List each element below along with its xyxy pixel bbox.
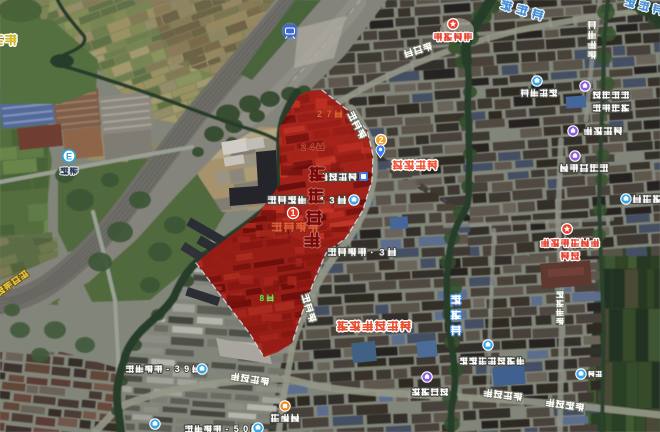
svg-text:5: 5 [234, 424, 239, 432]
svg-text:2: 2 [301, 143, 306, 152]
svg-text:2: 2 [317, 109, 322, 119]
svg-text:4: 4 [310, 143, 315, 152]
svg-text:·: · [370, 247, 373, 258]
svg-text:-: - [225, 424, 228, 432]
svg-text:3: 3 [175, 364, 180, 374]
svg-text:0: 0 [243, 424, 248, 432]
svg-text:7: 7 [326, 109, 331, 119]
svg-text:3: 3 [329, 195, 334, 206]
svg-text:1: 1 [290, 208, 295, 218]
svg-text:9: 9 [184, 364, 189, 374]
svg-text:E: E [66, 152, 72, 162]
svg-text:-: - [166, 364, 169, 374]
svg-text:3: 3 [379, 247, 384, 258]
svg-text:8: 8 [260, 294, 265, 303]
svg-text:2: 2 [378, 135, 383, 145]
